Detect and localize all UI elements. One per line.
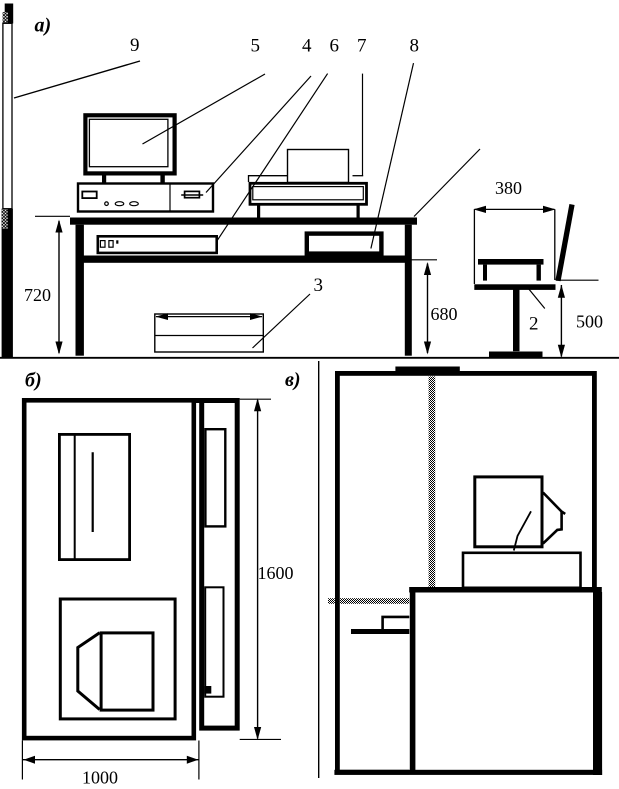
svg-text:7: 7 <box>357 36 367 57</box>
svg-text:1000: 1000 <box>82 768 118 788</box>
svg-text:1600: 1600 <box>258 563 294 583</box>
svg-text:3: 3 <box>314 275 324 296</box>
svg-text:6: 6 <box>330 36 340 57</box>
svg-text:а): а) <box>35 15 52 37</box>
svg-text:680: 680 <box>431 304 458 324</box>
svg-text:8: 8 <box>410 36 420 57</box>
svg-text:в): в) <box>285 369 301 391</box>
svg-text:500: 500 <box>576 312 603 332</box>
svg-text:2: 2 <box>529 314 539 335</box>
svg-text:9: 9 <box>130 35 140 56</box>
svg-text:4: 4 <box>302 36 312 57</box>
svg-text:5: 5 <box>251 36 261 57</box>
svg-text:б): б) <box>25 370 42 392</box>
svg-text:380: 380 <box>495 178 522 198</box>
svg-text:720: 720 <box>24 285 51 305</box>
